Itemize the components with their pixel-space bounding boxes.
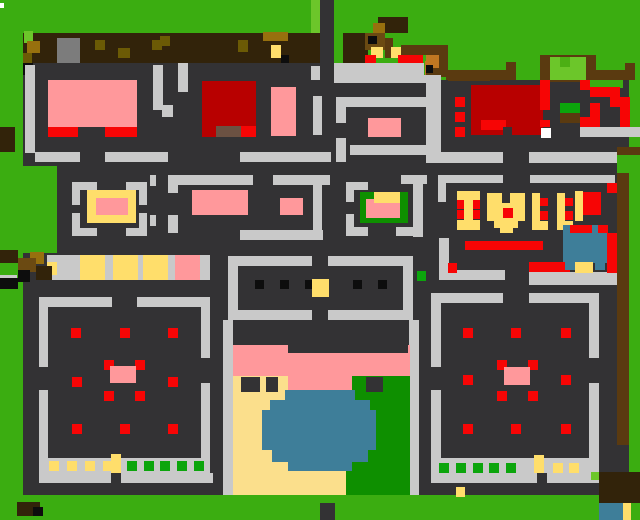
- map-rect-yellow: [575, 262, 593, 273]
- corner-bracket: [346, 214, 354, 236]
- lot-dot: [561, 375, 571, 385]
- map-rect-charcoal: [537, 473, 547, 485]
- lot-dot: [511, 328, 521, 338]
- map-rect-yellow: [457, 220, 480, 230]
- plaza-dot: [280, 280, 289, 289]
- park-border: [223, 320, 233, 495]
- plaza-dot: [255, 280, 264, 289]
- plaza-border: [328, 310, 413, 320]
- sidewalk: [153, 65, 163, 110]
- lot-dot: [168, 328, 178, 338]
- sidewalk: [168, 215, 178, 233]
- corner-bracket: [139, 182, 147, 205]
- plaza-border: [228, 256, 312, 266]
- map-rect-dashGrn: [560, 103, 580, 113]
- plaza-dot: [378, 280, 387, 289]
- fence-post-east: [625, 63, 635, 80]
- map-rect-darkOlive: [160, 36, 170, 46]
- west-edge-block: [0, 127, 15, 152]
- map-rect-red: [473, 210, 480, 219]
- map-rect-red: [455, 97, 465, 107]
- map-rect-black: [33, 507, 43, 516]
- map-rect-ltGrey: [580, 127, 640, 137]
- left-lot-border: [39, 297, 112, 307]
- map-rect-red: [455, 112, 465, 122]
- pond: [272, 450, 368, 462]
- map-rect-red: [565, 198, 573, 206]
- sidewalk: [162, 105, 173, 117]
- marker: [569, 463, 579, 473]
- lot-dot: [168, 424, 178, 434]
- corner-bracket: [396, 227, 418, 236]
- lot-dot: [104, 391, 114, 401]
- marker: [489, 463, 499, 473]
- pond: [288, 462, 352, 471]
- pool-base: [529, 272, 617, 285]
- lot-dot: [120, 328, 130, 338]
- lot-dot: [463, 328, 473, 338]
- map-rect-red: [580, 117, 590, 127]
- sign-letter-l2: [557, 193, 565, 221]
- map-rect-charcoal: [288, 345, 408, 353]
- tree-branch: [0, 250, 18, 263]
- corner-bracket: [346, 182, 354, 202]
- marker: [553, 463, 563, 473]
- map-rect-taupe: [216, 126, 241, 137]
- stall: [143, 255, 168, 280]
- lot-dot: [561, 424, 571, 434]
- lot-dot: [168, 377, 178, 387]
- lot-dot: [463, 424, 473, 434]
- shelter-outline: [336, 97, 428, 107]
- map-rect-red: [607, 183, 617, 193]
- map-rect-red: [457, 210, 464, 219]
- sign-red-block: [583, 192, 601, 215]
- left-lot-border: [137, 297, 210, 307]
- lot-dot: [463, 375, 473, 385]
- corner-bracket: [438, 175, 446, 202]
- map-rect-red: [590, 103, 600, 127]
- sidewalk: [311, 66, 320, 80]
- sign-letter-i: [457, 191, 480, 200]
- map-rect-red: [607, 233, 617, 273]
- map-rect-red: [610, 97, 620, 107]
- map-rect-red: [241, 126, 256, 137]
- map-rect-blue: [565, 262, 575, 270]
- marker: [177, 461, 187, 471]
- map-rect-darkOlive: [95, 40, 105, 50]
- right-lot-border: [589, 303, 599, 358]
- corner-water: [599, 503, 623, 520]
- sidewalk: [313, 96, 322, 135]
- shelter-outline: [350, 145, 428, 155]
- building-a-awning: [48, 127, 78, 137]
- lot-dot: [72, 377, 82, 387]
- map-rect-charcoal: [503, 127, 512, 135]
- map-rect-red: [580, 80, 590, 90]
- marker: [439, 463, 449, 473]
- sign-heart: [487, 193, 502, 203]
- lot-dot: [511, 424, 521, 434]
- sidewalk: [240, 230, 323, 240]
- left-lot-border: [39, 473, 213, 483]
- map-rect-darkOlive: [118, 48, 130, 58]
- yellow-shop-roof: [96, 198, 128, 215]
- map-rect-black: [368, 36, 377, 44]
- sign-letter-l1: [532, 193, 540, 221]
- map-rect-mustard: [263, 32, 288, 41]
- sidewalk: [168, 175, 253, 185]
- harbor-grey-block: [57, 38, 80, 63]
- map-rect-yellow: [532, 221, 548, 230]
- left-lot-border: [201, 297, 210, 358]
- map-rect-yellow: [623, 503, 631, 520]
- map-rect-red: [540, 198, 548, 206]
- tree-canopy: [23, 166, 57, 253]
- marker: [144, 461, 154, 471]
- east-fence-strip: [617, 173, 629, 445]
- map-rect-red: [540, 120, 550, 127]
- sidewalk: [529, 152, 618, 163]
- white-dot: [0, 3, 4, 8]
- fence-post: [506, 62, 516, 80]
- sidewalk: [35, 152, 80, 162]
- map-rect-red: [590, 87, 620, 97]
- map-rect-black: [18, 270, 30, 282]
- map-rect-dkBrown: [36, 266, 52, 280]
- sidewalk: [178, 63, 188, 92]
- marker: [456, 463, 466, 473]
- red-bar: [465, 241, 543, 250]
- map-rect-brown: [560, 113, 580, 123]
- shelter-outline: [336, 107, 346, 123]
- north-road: [320, 0, 334, 63]
- park-border: [409, 320, 419, 495]
- map-rect-dashGrn: [417, 271, 426, 281]
- shelter-building: [368, 118, 401, 137]
- marker: [103, 461, 111, 471]
- marker: [473, 463, 483, 473]
- pink-tower: [271, 87, 296, 136]
- map-rect-red: [620, 97, 630, 127]
- map-rect-red: [598, 225, 608, 233]
- lot-dot: [561, 328, 571, 338]
- junction-plaza: [334, 75, 441, 83]
- map-rect-red: [540, 211, 548, 220]
- sidewalk: [25, 65, 35, 153]
- right-lot-gate: [534, 455, 544, 473]
- stall: [175, 255, 200, 280]
- map-rect-black: [426, 65, 433, 73]
- pond: [276, 449, 285, 459]
- map-rect-dkRed: [202, 126, 216, 137]
- map-rect-yellow: [494, 221, 518, 228]
- building-a-roof: [48, 80, 137, 127]
- map-rect-yellow: [500, 228, 513, 233]
- lot-dot: [497, 391, 507, 401]
- lot-dot: [71, 328, 81, 338]
- marker: [127, 461, 137, 471]
- map-rect-yellow: [510, 193, 525, 203]
- stall: [80, 255, 105, 280]
- sidewalk: [426, 152, 503, 163]
- marker: [49, 461, 59, 471]
- shelter-outline: [336, 138, 346, 162]
- sidewalk: [150, 175, 156, 186]
- building-e-roof: [280, 198, 303, 215]
- map-rect-red: [448, 263, 457, 273]
- map-rect-blue: [595, 262, 605, 270]
- map-rect-red: [570, 225, 592, 233]
- stall: [113, 255, 138, 280]
- map-rect-yellow: [456, 487, 465, 497]
- sidewalk: [273, 175, 330, 185]
- map-rect-red: [503, 208, 513, 218]
- game-map-viewport[interactable]: [0, 0, 640, 520]
- map-rect-black: [281, 55, 289, 63]
- map-rect-grass: [617, 155, 629, 173]
- corner-bracket: [139, 213, 147, 236]
- sign-bar: [575, 191, 583, 221]
- map-rect-yellow: [271, 45, 281, 58]
- corner-bracket: [72, 213, 80, 236]
- building-d-roof: [192, 190, 248, 215]
- park-rock: [241, 377, 260, 392]
- sidewalk: [240, 152, 331, 162]
- north-road-verge: [311, 0, 320, 33]
- fence: [446, 70, 506, 80]
- sidewalk: [426, 77, 441, 163]
- plaza-border: [228, 310, 312, 320]
- map-rect-darkOlive: [238, 40, 248, 52]
- right-lot-border: [431, 293, 503, 303]
- pond: [262, 410, 376, 450]
- map-rect-red: [457, 200, 464, 209]
- lot-dot: [135, 360, 145, 370]
- corner-bracket: [72, 182, 80, 205]
- right-lot-border: [431, 473, 599, 483]
- lot-dot: [72, 424, 82, 434]
- marker: [67, 461, 77, 471]
- sidewalk: [105, 152, 168, 162]
- marker: [85, 461, 95, 471]
- map-rect-red: [565, 211, 573, 220]
- left-lot-border: [39, 307, 48, 367]
- marker: [506, 463, 516, 473]
- marker: [194, 461, 204, 471]
- plaza-dot: [353, 280, 362, 289]
- corner-bracket: [438, 175, 503, 183]
- map-rect-red: [455, 127, 465, 137]
- left-lot-gate: [111, 454, 121, 473]
- building-b-roof: [202, 81, 256, 126]
- lot-dot: [528, 391, 538, 401]
- map-rect-charcoal: [111, 473, 121, 485]
- map-rect-red: [540, 262, 565, 272]
- lot-dot: [120, 424, 130, 434]
- park-rock: [266, 377, 278, 392]
- sidewalk: [530, 175, 615, 183]
- map-rect-yellow: [464, 200, 473, 220]
- map-rect-black: [0, 278, 18, 289]
- map-rect-yellow: [374, 192, 400, 203]
- map-rect-red: [473, 200, 480, 209]
- plaza-door: [312, 279, 329, 297]
- lot-dot: [135, 391, 145, 401]
- building-a-awning: [105, 127, 137, 137]
- map-rect-mustard: [27, 41, 40, 53]
- sidewalk: [150, 215, 156, 226]
- right-lot-center: [504, 367, 530, 385]
- map-rect-brown: [617, 147, 640, 155]
- park-rock: [366, 377, 383, 392]
- right-lot-border: [529, 293, 599, 303]
- map-rect-midGrn: [560, 57, 570, 67]
- right-lot-border: [431, 303, 441, 367]
- south-exit: [320, 503, 335, 520]
- map-rect-liteGrn: [591, 472, 599, 480]
- plaza-border: [328, 256, 413, 266]
- red-maze: [540, 80, 550, 110]
- corner-building: [599, 472, 640, 503]
- junction-plaza: [334, 63, 424, 75]
- marker: [160, 461, 170, 471]
- map-rect-white: [541, 128, 551, 138]
- left-lot-center: [110, 366, 136, 383]
